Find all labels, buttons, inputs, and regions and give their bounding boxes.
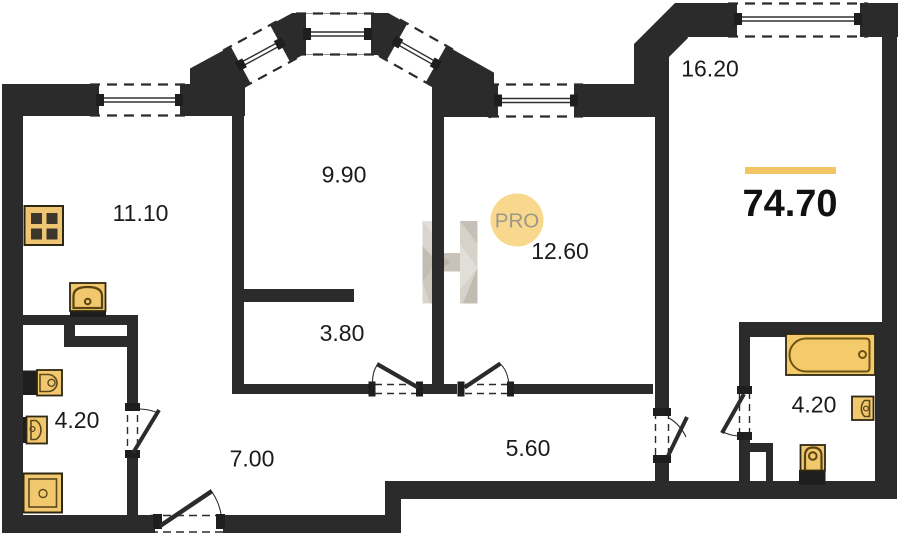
svg-text:7.00: 7.00 [230,446,275,472]
svg-text:4.20: 4.20 [792,392,837,418]
svg-text:9.90: 9.90 [322,162,367,188]
svg-text:12.60: 12.60 [531,238,589,264]
svg-text:5.60: 5.60 [506,435,551,461]
svg-text:PRO: PRO [495,210,539,233]
svg-text:4.20: 4.20 [55,407,100,433]
svg-text:74.70: 74.70 [742,183,837,225]
svg-text:16.20: 16.20 [681,56,739,82]
svg-text:3.80: 3.80 [320,320,365,346]
svg-text:11.10: 11.10 [113,200,169,226]
